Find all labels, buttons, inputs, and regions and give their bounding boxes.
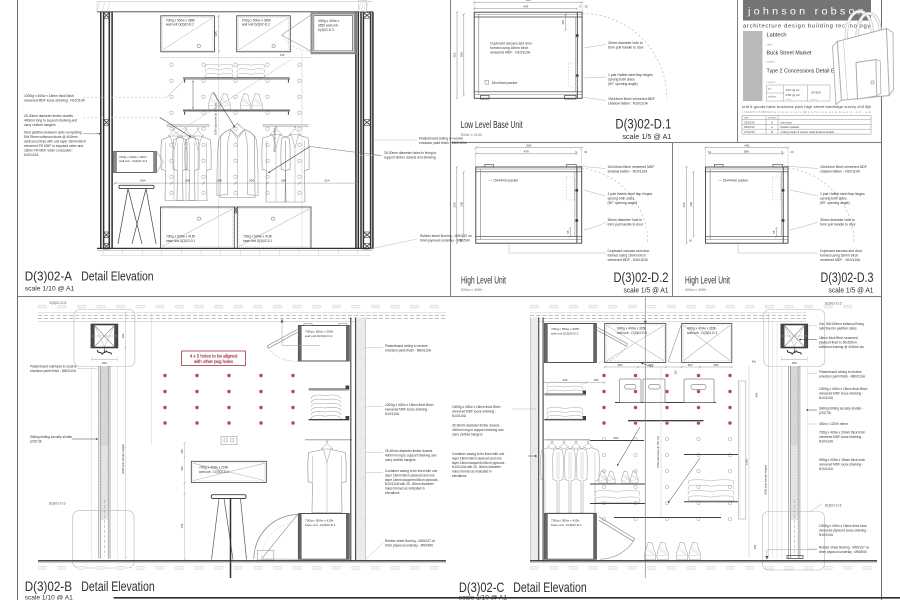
svg-text:Container casing to be lined w: Container casing to be lined with one xyxy=(452,452,505,456)
svg-text:wall unit - D(3)02-D.3: wall unit - D(3)02-D.3 xyxy=(687,331,717,335)
svg-text:150: 150 xyxy=(594,378,599,382)
svg-text:plywood fixed to 50x50mm: plywood fixed to 50x50mm xyxy=(819,340,857,344)
svg-text:250: 250 xyxy=(102,361,107,365)
svg-text:400mm long to support shelving: 400mm long to support shelving and xyxy=(385,453,437,457)
svg-text:scale 1/10 @ A1: scale 1/10 @ A1 xyxy=(25,286,75,293)
svg-text:25-30mm diameter holes in lini: 25-30mm diameter holes in lining to xyxy=(384,151,436,155)
svg-text:735: 735 xyxy=(180,523,184,528)
svg-text:N10/110A: N10/110A xyxy=(819,396,834,400)
svg-text:layer 18mm lacquered Birch ply: layer 18mm lacquered Birch plywood - xyxy=(385,478,439,482)
svg-text:vertical centres with one laye: vertical centres with one layer 18mm Bir… xyxy=(24,140,86,144)
svg-text:form pull handle to door: form pull handle to door xyxy=(608,46,644,50)
svg-text:veneered MDF loose shelving -: veneered MDF loose shelving - xyxy=(819,435,863,439)
svg-text:4 x 5 holes to be aligned: 4 x 5 holes to be aligned xyxy=(190,353,238,358)
svg-text:first issue: first issue xyxy=(781,120,793,124)
svg-text:1000lg x 400w x 18mm thick bir: 1000lg x 400w x 18mm thick birch xyxy=(819,524,867,528)
svg-text:330: 330 xyxy=(459,201,463,206)
svg-text:(90° opening angle): (90° opening angle) xyxy=(820,201,850,205)
svg-text:D(3)02-B: D(3)02-B xyxy=(25,579,72,594)
svg-text:390: 390 xyxy=(459,52,463,57)
svg-text:emulsion paint finish - M60/11: emulsion paint finish - M60/110A xyxy=(419,141,467,145)
svg-text:job no.: job no. xyxy=(810,99,818,101)
svg-text:formed using 18mm birch: formed using 18mm birch xyxy=(608,254,646,258)
svg-text:holes formed as indicated in: holes formed as indicated in xyxy=(385,487,425,491)
svg-text:18mm thick Birch veneered: 18mm thick Birch veneered xyxy=(819,336,858,340)
svg-text:1000lg x 400w x 18mm thick Bir: 1000lg x 400w x 18mm thick Birch xyxy=(819,387,868,391)
svg-text:revision: revision xyxy=(768,117,777,120)
svg-text:500: 500 xyxy=(526,0,531,2)
svg-text:elevations: elevations xyxy=(452,474,467,478)
svg-text:105: 105 xyxy=(675,370,678,375)
svg-text:O: O xyxy=(771,120,773,124)
svg-text:content: content xyxy=(767,80,776,84)
svg-text:carry clothes hangers: carry clothes hangers xyxy=(452,432,483,436)
svg-text:1000lg x 400w x 18mm thick Bir: 1000lg x 400w x 18mm thick Birch xyxy=(385,403,434,407)
svg-text:700lg x 500w x 415h: 700lg x 500w x 415h xyxy=(243,235,272,239)
svg-text:N10/110A with 25 -30mm diamete: N10/110A with 25 -30mm diameter xyxy=(452,465,502,469)
svg-text:300: 300 xyxy=(714,363,719,367)
svg-text:Rubber sheet flooring - M50/13: Rubber sheet flooring - M50/137 on xyxy=(385,539,435,543)
svg-text:High Level Unit: High Level Unit xyxy=(685,276,730,287)
svg-text:D(3)02-D.2: D(3)02-D.2 xyxy=(614,270,669,285)
svg-text:scale 1/5 @ A1: scale 1/5 @ A1 xyxy=(622,134,671,141)
svg-text:500w x 365h: 500w x 365h xyxy=(461,288,483,292)
svg-text:Detail Elevation: Detail Elevation xyxy=(81,579,154,594)
svg-text:Cupboard carcass and door: Cupboard carcass and door xyxy=(490,42,533,46)
svg-text:2500 (sub shutter height): 2500 (sub shutter height) xyxy=(121,444,125,474)
svg-text:— 15x44mm packer: — 15x44mm packer xyxy=(489,179,519,183)
svg-text:— 15x44mm packer: — 15x44mm packer xyxy=(719,179,749,183)
svg-text:29/10/19: 29/10/19 xyxy=(744,120,755,124)
svg-text:project: project xyxy=(767,60,775,64)
svg-text:D(3)02-A: D(3)02-A xyxy=(25,269,72,284)
svg-text:400w x 365h: 400w x 365h xyxy=(685,288,707,292)
svg-text:1/50 @ A3: 1/50 @ A3 xyxy=(786,93,800,97)
svg-text:30mm diameter hole to: 30mm diameter hole to xyxy=(608,218,643,222)
svg-text:6mm plywood underlay - M50/540: 6mm plywood underlay - M50/540 xyxy=(420,239,470,243)
svg-text:Cupboard carcass and door: Cupboard carcass and door xyxy=(608,249,651,253)
svg-text:05/12/19: 05/12/19 xyxy=(744,125,755,129)
svg-text:365h wall unit -: 365h wall unit - xyxy=(318,24,339,28)
svg-text:holes formed as indicated in: holes formed as indicated in xyxy=(452,470,492,474)
svg-text:45x: 45x xyxy=(752,360,757,364)
svg-text:15x44mm Birch veneered MDF: 15x44mm Birch veneered MDF xyxy=(820,165,867,169)
svg-text:700lg x 400w x 20mm thick birc: 700lg x 400w x 20mm thick birch xyxy=(819,431,865,435)
svg-text:Plasterboard ceiling to receiv: Plasterboard ceiling to receive xyxy=(419,137,463,141)
svg-text:400lg x 400w x: 400lg x 400w x xyxy=(318,19,340,23)
svg-text:layer 18mm Birch plywood and o: layer 18mm Birch plywood and one xyxy=(385,473,435,477)
svg-text:Ceiling height & shutter head: Ceiling height & shutter head detail ame… xyxy=(781,130,835,134)
svg-text:65: 65 xyxy=(566,230,570,234)
svg-text:1 pair Hafele steel flap hinge: 1 pair Hafele steel flap hinges xyxy=(608,73,653,77)
svg-text:shadow batten - N10/110A: shadow batten - N10/110A xyxy=(608,170,649,174)
svg-text:sprung both sides: sprung both sides xyxy=(608,78,635,82)
svg-text:30mm diameter hole to: 30mm diameter hole to xyxy=(608,41,643,45)
svg-text:veneered FR MDF to exposed sid: veneered FR MDF to exposed sides and xyxy=(24,144,83,148)
svg-text:job: job xyxy=(767,88,772,91)
svg-text:300: 300 xyxy=(185,179,190,183)
svg-text:478: 478 xyxy=(523,4,528,8)
svg-text:wall unit D(3)02-D.2: wall unit D(3)02-D.2 xyxy=(166,23,194,27)
svg-text:N10/110A: N10/110A xyxy=(452,414,467,418)
svg-text:1/10 @ A1: 1/10 @ A1 xyxy=(786,88,800,92)
svg-text:400mm long to support shelving: 400mm long to support shelving and xyxy=(24,119,77,123)
svg-text:elevations: elevations xyxy=(385,491,400,495)
svg-text:330: 330 xyxy=(689,201,693,206)
svg-text:del/dwn: del/dwn xyxy=(768,96,777,99)
svg-text:(90° opening angle): (90° opening angle) xyxy=(608,201,638,205)
svg-text:Sliding folding security shutt: Sliding folding security shutter - xyxy=(819,407,863,411)
svg-text:softwood framing @ 400mm cts: softwood framing @ 400mm cts xyxy=(819,345,864,349)
svg-text:scale 1/5 @ A1: scale 1/5 @ A1 xyxy=(829,288,874,295)
svg-text:JR 856: JR 856 xyxy=(811,91,821,95)
svg-text:High Level Unit: High Level Unit xyxy=(461,276,506,287)
svg-text:Rubber sheet flooring - M50/13: Rubber sheet flooring - M50/137 on xyxy=(420,234,472,238)
svg-text:1 pair Hafele steel flap hinge: 1 pair Hafele steel flap hinges xyxy=(820,192,865,196)
svg-text:300: 300 xyxy=(281,179,286,183)
svg-text:1350 (sub holes @ 150 cts): 1350 (sub holes @ 150 cts) xyxy=(656,436,660,468)
svg-text:D(3)01-D.6: D(3)01-D.6 xyxy=(825,504,842,508)
svg-text:(20)T.36: (20)T.36 xyxy=(819,411,831,415)
svg-text:wall unit - D(3)02-D.5: wall unit - D(3)02-D.5 xyxy=(617,331,647,335)
svg-text:unit 6 goods bank business p: unit 6 goods bank business park high str… xyxy=(742,105,871,109)
svg-text:shadow batten - N10/110A: shadow batten - N10/110A xyxy=(820,170,861,174)
svg-text:scale 1/5 @ A1: scale 1/5 @ A1 xyxy=(624,288,669,295)
svg-text:Plasterboard bulkhead to recei: Plasterboard bulkhead to receive xyxy=(30,365,77,369)
svg-text:Container casing to be lined w: Container casing to be lined with one xyxy=(385,469,438,473)
svg-text:700lg x 500w x 365h: 700lg x 500w x 365h xyxy=(166,18,195,22)
svg-text:Stud partition between units c: Stud partition between units comprising xyxy=(24,131,82,135)
svg-text:1 pair Hafele steel flap hinge: 1 pair Hafele steel flap hinges xyxy=(608,192,653,196)
svg-text:base unit - D(3)02-D.1: base unit - D(3)02-D.1 xyxy=(551,523,582,527)
svg-text:25-30mm diameter timber dowels: 25-30mm diameter timber dowels xyxy=(385,449,433,453)
svg-text:200: 200 xyxy=(180,466,184,471)
svg-text:25-30mm diameter timber dowels: 25-30mm diameter timber dowels xyxy=(452,424,500,428)
svg-text:Labtech: Labtech xyxy=(767,33,787,39)
svg-text:Low Level Base Unit: Low Level Base Unit xyxy=(461,120,523,131)
svg-text:emulsion paint finish - M60/11: emulsion paint finish - M60/110A xyxy=(385,348,432,352)
svg-text:500w x 415h: 500w x 415h xyxy=(461,133,483,137)
svg-text:formed using 18mm birch: formed using 18mm birch xyxy=(490,46,528,50)
svg-text:400: 400 xyxy=(755,392,759,397)
svg-text:500: 500 xyxy=(526,143,531,147)
svg-text:1000lg x 400w x 18mm thick Bir: 1000lg x 400w x 18mm thick Birch xyxy=(24,94,74,98)
svg-text:emulsion paint finish - M60/11: emulsion paint finish - M60/110A xyxy=(30,369,77,373)
svg-text:veneered MDF : N10/110A: veneered MDF : N10/110A xyxy=(490,51,531,55)
svg-text:wall unit D(3)02-D.2: wall unit D(3)02-D.2 xyxy=(242,23,270,27)
svg-text:50x75mm softwood studs @ 400mm: 50x75mm softwood studs @ 400mm xyxy=(24,135,78,139)
svg-text:Cupboard carcass and door: Cupboard carcass and door xyxy=(820,249,863,253)
svg-text:314: 314 xyxy=(324,179,329,183)
svg-text:B: B xyxy=(771,130,773,134)
svg-text:N10/110A: N10/110A xyxy=(819,439,834,443)
svg-text:700lg x 400w x 200h: 700lg x 400w x 200h xyxy=(199,466,228,470)
svg-text:veneered MDF loose shelving :: veneered MDF loose shelving : N10/110A xyxy=(24,99,86,103)
svg-text:emulsion paint finish - M60/11: emulsion paint finish - M60/110A xyxy=(819,374,866,378)
svg-text:veneered MDF loose shelving -: veneered MDF loose shelving - xyxy=(385,407,429,411)
svg-text:rails fixed to partition sides: rails fixed to partition sides xyxy=(819,326,857,330)
svg-text:6mm plywood underlay - M50/540: 6mm plywood underlay - M50/540 xyxy=(385,543,433,547)
svg-text:25-30mm diameter timber dowels: 25-30mm diameter timber dowels xyxy=(24,114,73,118)
svg-text:Detail Elevation: Detail Elevation xyxy=(81,269,153,284)
svg-text:368: 368 xyxy=(744,150,749,154)
svg-text:400: 400 xyxy=(744,143,749,147)
svg-text:veneered MDF loose shelving :: veneered MDF loose shelving : xyxy=(452,409,496,413)
svg-text:Plasterboard ceiling to receiv: Plasterboard ceiling to receive xyxy=(819,370,862,374)
svg-text:400lg x 400w x 365h: 400lg x 400w x 365h xyxy=(687,327,716,331)
svg-text:client: client xyxy=(767,43,774,47)
svg-text:layer 18mm lacquered Birch ply: layer 18mm lacquered Birch plywood - xyxy=(452,461,506,465)
svg-text:1350: 1350 xyxy=(744,459,748,465)
svg-text:300: 300 xyxy=(688,363,693,367)
svg-text:300: 300 xyxy=(618,363,623,367)
svg-text:wall unit D(3)02-D.2: wall unit D(3)02-D.2 xyxy=(551,331,579,335)
svg-text:400w x 1200h mirror: 400w x 1200h mirror xyxy=(819,422,849,426)
svg-text:date: date xyxy=(744,117,749,120)
svg-text:sprung both sides: sprung both sides xyxy=(820,197,847,201)
svg-text:base unit - D(3)02-D.1: base unit - D(3)02-D.1 xyxy=(305,523,336,527)
svg-text:D(3)01-D.5: D(3)01-D.5 xyxy=(825,302,842,306)
svg-text:365: 365 xyxy=(452,202,456,207)
svg-text:Detail Elevation: Detail Elevation xyxy=(513,580,586,595)
svg-text:15x44mm Birch veneered MDF: 15x44mm Birch veneered MDF xyxy=(608,165,655,169)
svg-text:johnson robson: johnson robson xyxy=(747,7,867,18)
svg-text:400: 400 xyxy=(563,378,568,382)
svg-text:N10/110A: N10/110A xyxy=(24,153,39,157)
svg-text:6mm plywood underlay : M50/540: 6mm plywood underlay : M50/540 xyxy=(819,550,867,554)
svg-text:500lg x 400w x 18mm thick birc: 500lg x 400w x 18mm thick birch xyxy=(819,458,865,462)
svg-text:(20)T.36: (20)T.36 xyxy=(30,439,42,443)
svg-text:365: 365 xyxy=(682,202,686,207)
svg-text:shadow batten : N10/110A: shadow batten : N10/110A xyxy=(608,102,648,106)
svg-text:veneered plywood loose shelvin: veneered plywood loose shelving - xyxy=(819,528,868,532)
svg-text:carry clothes hangers: carry clothes hangers xyxy=(385,458,416,462)
svg-text:Sliding folding security shutt: Sliding folding security shutter xyxy=(30,435,73,439)
svg-text:wall unit - D(3)01-D.4: wall unit - D(3)01-D.4 xyxy=(199,470,229,474)
svg-text:formed using 18mm birch: formed using 18mm birch xyxy=(820,254,858,258)
svg-text:form pull handle to door: form pull handle to door xyxy=(820,223,856,227)
svg-text:N10/110A: N10/110A xyxy=(819,467,834,471)
svg-text:t 01670 745010 e n q u: t 01670 745010 e n q u i r i e s @ j o h… xyxy=(742,110,872,114)
svg-text:2500 (sub shutter height): 2500 (sub shutter height) xyxy=(764,465,768,495)
svg-text:support timber dowels and shel: support timber dowels and shelving xyxy=(384,156,436,160)
svg-text:scale 1/10 @ A1: scale 1/10 @ A1 xyxy=(25,594,73,600)
svg-text:layer 18mm Birch plywood and o: layer 18mm Birch plywood and one xyxy=(452,456,502,460)
svg-text:veneered MDF - N10/110A: veneered MDF - N10/110A xyxy=(608,258,649,262)
svg-text:D(3)01-D.5: D(3)01-D.5 xyxy=(50,301,67,305)
svg-text:415: 415 xyxy=(452,52,456,57)
svg-text:architecture design buil: architecture design building technology xyxy=(743,24,871,30)
svg-text:veneered MDF loose shelving -: veneered MDF loose shelving - xyxy=(819,391,863,395)
svg-text:200: 200 xyxy=(121,333,125,338)
svg-text:1000lg x 400w x 18mm thick Bir: 1000lg x 400w x 18mm thick Birch xyxy=(452,405,501,409)
svg-text:30mm diameter hole to: 30mm diameter hole to xyxy=(820,218,855,222)
svg-text:15x44mm Birch veneered MDF: 15x44mm Birch veneered MDF xyxy=(608,97,655,101)
svg-text:form pull handle to door: form pull handle to door xyxy=(608,223,644,227)
svg-text:wall unit D(3)02-D.2: wall unit D(3)02-D.2 xyxy=(305,334,333,338)
svg-text:400mm long to support shelving: 400mm long to support shelving and xyxy=(452,428,504,432)
svg-text:D(3)01-D.6: D(3)01-D.6 xyxy=(49,502,66,506)
svg-text:150: 150 xyxy=(180,449,184,454)
svg-text:sprung both sides: sprung both sides xyxy=(608,197,635,201)
svg-text:veneered MDF loose shelving -: veneered MDF loose shelving - xyxy=(819,462,863,466)
svg-text:Plasterboard ceiling to receiv: Plasterboard ceiling to receive xyxy=(385,344,428,348)
svg-text:18mm FR MDF when concealed :: 18mm FR MDF when concealed : xyxy=(24,149,73,153)
svg-text:carry clothes hangers: carry clothes hangers xyxy=(24,123,56,127)
svg-text:Details updated: Details updated xyxy=(781,125,800,129)
svg-text:15x44mm packer: 15x44mm packer xyxy=(492,81,519,85)
svg-text:D(3)02-D.3: D(3)02-D.3 xyxy=(821,270,874,285)
svg-text:wall unit - D(3)01-D.4: wall unit - D(3)01-D.4 xyxy=(119,159,148,163)
svg-text:500: 500 xyxy=(614,436,619,440)
svg-text:27/12/19: 27/12/19 xyxy=(744,130,755,134)
svg-text:D(3)02-D.3: D(3)02-D.3 xyxy=(318,28,334,32)
svg-text:600lg x 400w x 365h: 600lg x 400w x 365h xyxy=(617,327,646,331)
svg-text:300: 300 xyxy=(249,179,254,183)
svg-text:350: 350 xyxy=(753,544,757,549)
svg-text:105: 105 xyxy=(280,53,285,57)
svg-text:(90° opening angle): (90° opening angle) xyxy=(608,82,638,86)
svg-text:A: A xyxy=(771,125,773,129)
svg-text:300: 300 xyxy=(217,179,222,183)
svg-text:564: 564 xyxy=(140,179,145,183)
svg-text:base unit D(3)02-D.1: base unit D(3)02-D.1 xyxy=(243,239,273,243)
svg-text:base unit D(3)02-D.1: base unit D(3)02-D.1 xyxy=(166,239,196,243)
svg-text:115: 115 xyxy=(561,20,565,25)
svg-text:Rubber sheet flooring - M50/13: Rubber sheet flooring - M50/137 on xyxy=(819,546,869,550)
svg-text:478: 478 xyxy=(524,150,529,154)
svg-text:65: 65 xyxy=(772,230,776,234)
svg-text:1000 (sub holes @ 150 cts): 1000 (sub holes @ 150 cts) xyxy=(213,103,217,135)
svg-text:Buck Street Market: Buck Street Market xyxy=(767,51,812,57)
svg-text:365: 365 xyxy=(214,31,218,36)
svg-text:700lg x 500w x 415h: 700lg x 500w x 415h xyxy=(166,235,195,239)
svg-text:scale: scale xyxy=(786,99,792,101)
svg-text:250: 250 xyxy=(792,361,797,365)
svg-text:N10/110A with 25 -30mm diamete: N10/110A with 25 -30mm diameter xyxy=(385,482,435,486)
svg-text:D(3)02-C: D(3)02-C xyxy=(459,580,505,595)
svg-text:700lg x 500w x 365h: 700lg x 500w x 365h xyxy=(242,18,271,22)
svg-text:N10/110A: N10/110A xyxy=(385,412,400,416)
svg-text:veneered MDF - N10/110A: veneered MDF - N10/110A xyxy=(820,258,861,262)
svg-text:N10/110A: N10/110A xyxy=(819,533,834,537)
svg-text:2no. 50x100mm softwood fixing: 2no. 50x100mm softwood fixing xyxy=(819,322,864,326)
svg-text:with other peg holes: with other peg holes xyxy=(194,359,234,364)
svg-text:D(3)02-D.1: D(3)02-D.1 xyxy=(615,117,671,132)
svg-text:scale 1/10 @ A1: scale 1/10 @ A1 xyxy=(459,594,507,600)
